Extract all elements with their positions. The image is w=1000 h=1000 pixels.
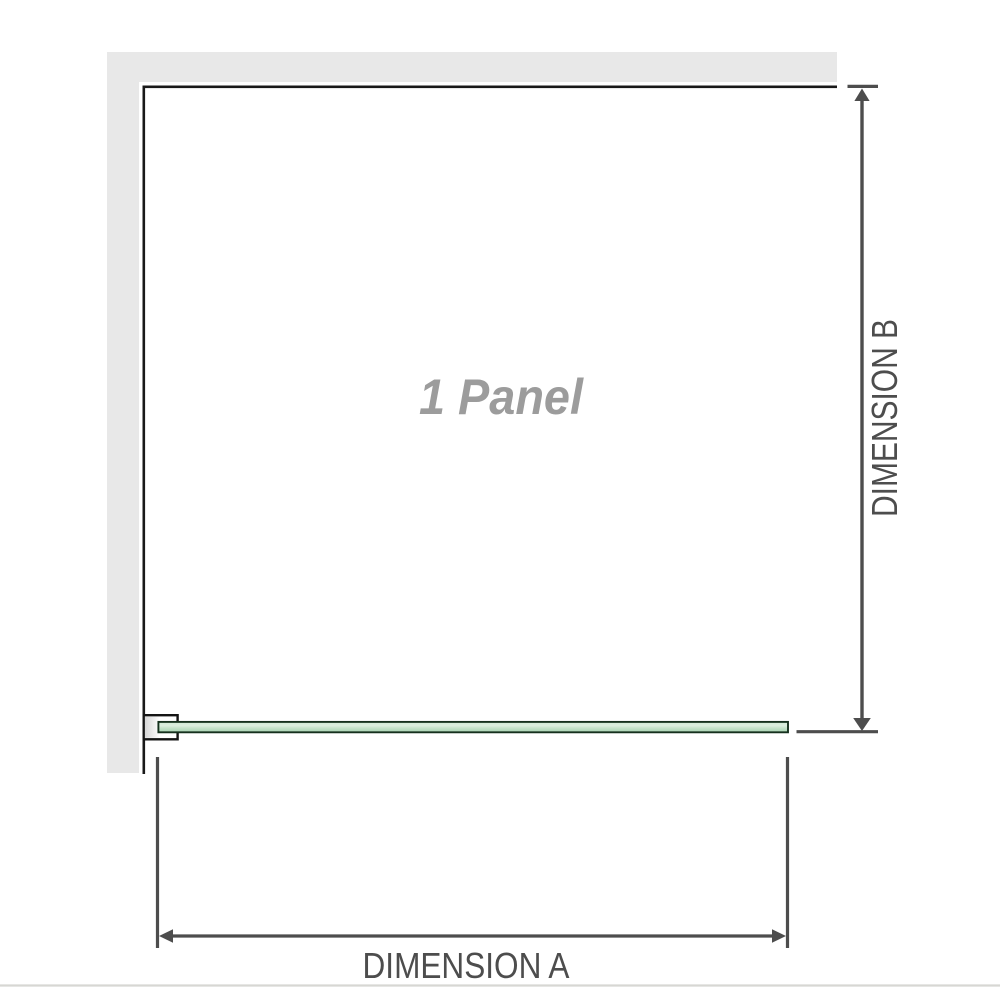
svg-text:1 Panel: 1 Panel bbox=[419, 369, 584, 425]
svg-text:DIMENSION A: DIMENSION A bbox=[363, 945, 570, 986]
svg-text:DIMENSION B: DIMENSION B bbox=[864, 319, 905, 517]
